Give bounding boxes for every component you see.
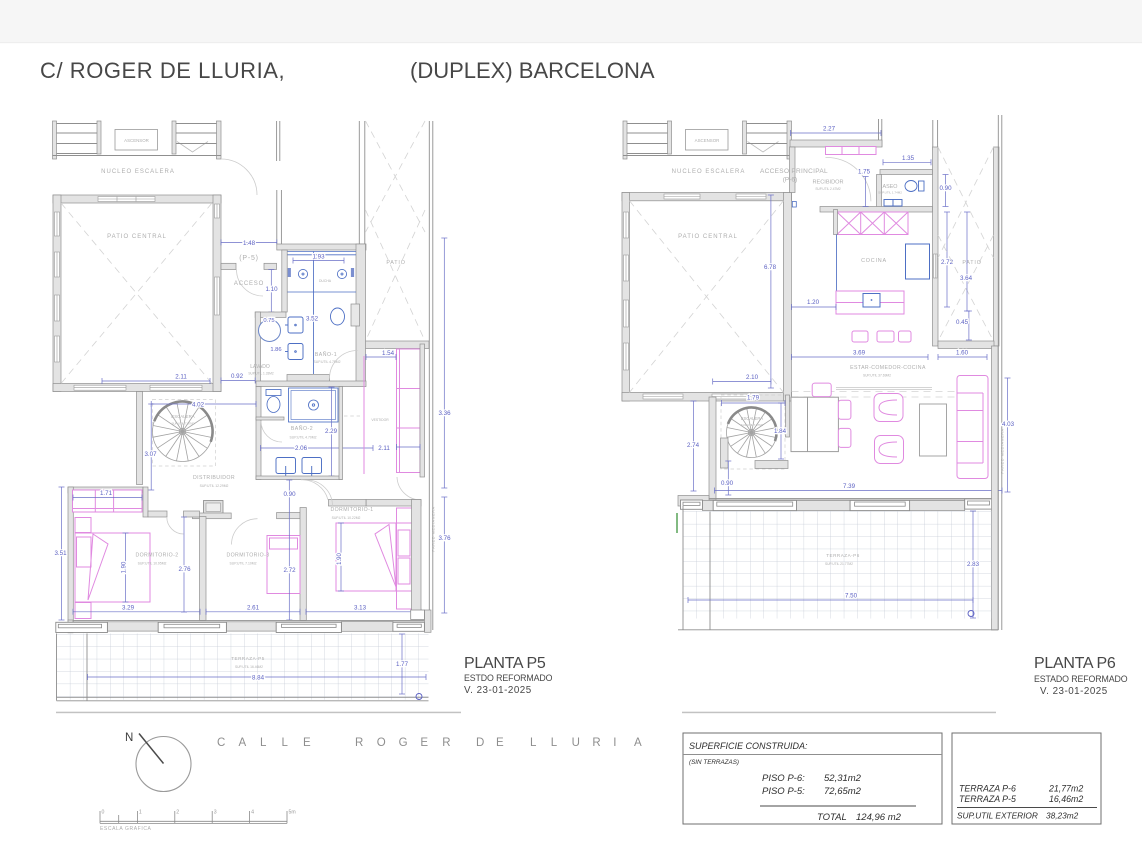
svg-text:7.50: 7.50 <box>845 593 858 600</box>
svg-text:SUP.UTIL 7.10M2: SUP.UTIL 7.10M2 <box>230 562 257 566</box>
svg-text:DORMITORIO-3: DORMITORIO-3 <box>226 553 269 559</box>
svg-text:L: L <box>260 737 267 749</box>
svg-text:E: E <box>496 737 504 749</box>
svg-text:3.51: 3.51 <box>54 550 67 557</box>
svg-text:1.71: 1.71 <box>100 490 113 497</box>
svg-text:BAÑO-1: BAÑO-1 <box>315 351 337 358</box>
svg-text:SUP.UTIL 37.69M2: SUP.UTIL 37.69M2 <box>863 374 891 378</box>
svg-text:ESTAR-COMEDOR-COCINA: ESTAR-COMEDOR-COCINA <box>850 365 926 371</box>
svg-text:2.29: 2.29 <box>325 428 338 435</box>
svg-text:38,23m2: 38,23m2 <box>1046 811 1079 821</box>
svg-text:ESTADO REFORMADO: ESTADO REFORMADO <box>1034 674 1128 684</box>
svg-text:1.35: 1.35 <box>902 155 915 162</box>
svg-text:52,31m2: 52,31m2 <box>824 773 862 784</box>
svg-text:3.64: 3.64 <box>960 275 973 282</box>
svg-text:PATIO: PATIO <box>386 260 405 266</box>
svg-text:TERRAZA-P5: TERRAZA-P5 <box>231 656 265 661</box>
svg-text:(P-5): (P-5) <box>239 255 259 262</box>
svg-text:C/ ROGER DE LLURIA,: C/ ROGER DE LLURIA, <box>40 58 285 83</box>
svg-text:1.60: 1.60 <box>956 350 969 357</box>
svg-text:0.90: 0.90 <box>939 185 952 192</box>
svg-text:NUCLEO ESCALERA: NUCLEO ESCALERA <box>101 169 175 175</box>
svg-text:3.52: 3.52 <box>306 316 319 323</box>
svg-text:COCINA: COCINA <box>861 258 887 264</box>
svg-text:3: 3 <box>214 810 217 816</box>
svg-text:SUP.UTIL EXTERIOR: SUP.UTIL EXTERIOR <box>957 811 1038 821</box>
svg-text:R: R <box>592 737 600 749</box>
svg-text:NUCLEO ESCALERA: NUCLEO ESCALERA <box>672 169 746 175</box>
svg-text:1.86: 1.86 <box>270 347 281 353</box>
svg-text:O: O <box>377 737 386 749</box>
svg-text:3.69: 3.69 <box>853 350 866 357</box>
svg-text:R: R <box>355 737 363 749</box>
svg-text:ASEO: ASEO <box>883 184 898 190</box>
svg-text:BAÑO-2: BAÑO-2 <box>291 425 313 432</box>
svg-text:1.84: 1.84 <box>774 428 787 435</box>
svg-text:4: 4 <box>251 810 254 816</box>
svg-text:V. 23-01-2025: V. 23-01-2025 <box>464 685 532 696</box>
svg-text:U: U <box>572 737 580 749</box>
svg-text:1.10: 1.10 <box>265 286 278 293</box>
svg-text:1.77: 1.77 <box>396 661 409 668</box>
svg-text:A: A <box>239 737 247 749</box>
svg-text:DISTRIBUIDOR: DISTRIBUIDOR <box>193 475 235 481</box>
svg-text:ACCESO PRINCIPAL: ACCESO PRINCIPAL <box>760 168 828 175</box>
svg-text:2.72: 2.72 <box>283 567 296 574</box>
svg-text:2.72: 2.72 <box>941 259 954 266</box>
svg-text:2.27: 2.27 <box>823 126 836 133</box>
svg-text:1.90: 1.90 <box>122 561 128 573</box>
svg-text:2.10: 2.10 <box>746 374 759 381</box>
svg-text:8.84: 8.84 <box>252 674 265 681</box>
svg-text:1.79: 1.79 <box>747 395 760 402</box>
svg-text:PARED MEDIANERA: PARED MEDIANERA <box>1001 428 1005 473</box>
svg-text:2: 2 <box>176 810 179 816</box>
svg-text:VESTIDOR: VESTIDOR <box>371 418 389 422</box>
svg-text:1.20: 1.20 <box>807 299 820 306</box>
svg-text:1.90: 1.90 <box>337 553 343 565</box>
svg-text:SUP.UTIL 1.33M2: SUP.UTIL 1.33M2 <box>248 372 274 376</box>
svg-text:0.90: 0.90 <box>283 491 296 498</box>
svg-text:SUP.UTIL 2.47M2: SUP.UTIL 2.47M2 <box>815 187 841 191</box>
svg-text:PISO P-6:: PISO P-6: <box>762 773 805 784</box>
svg-text:PATIO CENTRAL: PATIO CENTRAL <box>107 234 167 240</box>
svg-text:1.54: 1.54 <box>382 350 395 357</box>
svg-text:4.03: 4.03 <box>1002 421 1015 428</box>
svg-text:SUP.UTIL 16.46M2: SUP.UTIL 16.46M2 <box>235 665 263 669</box>
svg-text:0.45: 0.45 <box>956 319 969 326</box>
svg-text:2.11: 2.11 <box>175 373 187 380</box>
svg-text:SUP.UTIL 7.07M2: SUP.UTIL 7.07M2 <box>172 422 195 426</box>
svg-text:2.61: 2.61 <box>247 604 260 611</box>
svg-text:0: 0 <box>102 810 105 816</box>
svg-text:6.78: 6.78 <box>764 264 777 271</box>
svg-text:DORMITORIO-2: DORMITORIO-2 <box>135 553 178 559</box>
svg-text:0.90: 0.90 <box>721 480 734 487</box>
svg-text:PLANTA P5: PLANTA P5 <box>464 655 546 672</box>
svg-text:3.36: 3.36 <box>438 410 451 417</box>
svg-text:ESCALERA: ESCALERA <box>171 414 194 419</box>
svg-text:RECIBIDOR: RECIBIDOR <box>812 180 843 186</box>
svg-text:D: D <box>476 737 484 749</box>
svg-text:2.76: 2.76 <box>178 566 191 573</box>
svg-text:2.74: 2.74 <box>687 442 700 449</box>
svg-text:DORMITORIO-1: DORMITORIO-1 <box>330 507 373 513</box>
svg-text:I: I <box>613 737 616 749</box>
svg-text:TERRAZA-P6: TERRAZA-P6 <box>826 553 860 558</box>
svg-text:SUP.UTIL 10.95M2: SUP.UTIL 10.95M2 <box>138 562 167 566</box>
svg-text:N: N <box>125 732 133 744</box>
svg-text:3.07: 3.07 <box>144 451 157 458</box>
svg-text:(P-6): (P-6) <box>783 177 797 184</box>
svg-text:21,77m2: 21,77m2 <box>1048 784 1083 794</box>
svg-text:SUP.UTIL 4.75M2: SUP.UTIL 4.75M2 <box>314 360 341 364</box>
svg-text:DUCHA: DUCHA <box>319 279 332 283</box>
svg-text:ESTDO REFORMADO: ESTDO REFORMADO <box>464 673 553 683</box>
svg-text:PATIO CENTRAL: PATIO CENTRAL <box>678 234 738 240</box>
svg-text:ESCALERA: ESCALERA <box>741 416 764 421</box>
svg-text:C: C <box>217 737 225 749</box>
svg-text:2.83: 2.83 <box>967 561 980 568</box>
svg-text:LAVADO: LAVADO <box>250 364 270 370</box>
svg-text:G: G <box>399 737 408 749</box>
svg-text:SUP.UTIL 7.07M2: SUP.UTIL 7.07M2 <box>741 423 764 427</box>
svg-text:PISO P-5:: PISO P-5: <box>762 786 805 797</box>
svg-text:7.39: 7.39 <box>843 483 856 490</box>
svg-text:4.02: 4.02 <box>192 401 205 408</box>
svg-text:TOTAL: TOTAL <box>817 812 847 823</box>
svg-text:5m: 5m <box>289 810 296 816</box>
svg-text:3.13: 3.13 <box>354 604 367 611</box>
svg-text:SUP.UTIL 12.29M2: SUP.UTIL 12.29M2 <box>200 484 229 488</box>
svg-text:2.11: 2.11 <box>378 445 390 452</box>
svg-text:0.75: 0.75 <box>263 318 274 324</box>
svg-text:R: R <box>442 737 450 749</box>
svg-text:SUP.UTIL 21.77M2: SUP.UTIL 21.77M2 <box>825 562 853 566</box>
svg-text:SUP.UTIL 1.74M2: SUP.UTIL 1.74M2 <box>878 191 902 195</box>
svg-text:16,46m2: 16,46m2 <box>1049 794 1083 804</box>
svg-text:ASCENSOR: ASCENSOR <box>695 138 720 143</box>
svg-text:3.29: 3.29 <box>122 604 135 611</box>
svg-text:SUP.UTIL 4.70M2: SUP.UTIL 4.70M2 <box>290 436 317 440</box>
svg-text:1.93: 1.93 <box>312 254 325 261</box>
svg-text:3.76: 3.76 <box>438 535 451 542</box>
svg-text:L: L <box>530 737 537 749</box>
svg-text:E: E <box>420 737 428 749</box>
svg-text:L: L <box>282 737 289 749</box>
svg-text:PLANTA P6: PLANTA P6 <box>1034 655 1116 672</box>
svg-text:ACCESO: ACCESO <box>234 281 264 287</box>
svg-text:1.75: 1.75 <box>858 169 871 176</box>
svg-text:1: 1 <box>139 810 142 816</box>
svg-text:0.92: 0.92 <box>231 373 244 380</box>
svg-text:72,65m2: 72,65m2 <box>824 786 862 797</box>
svg-text:124,96 m2: 124,96 m2 <box>856 812 902 823</box>
svg-text:(SIN TERRAZAS): (SIN TERRAZAS) <box>689 759 739 766</box>
svg-text:(DUPLEX) BARCELONA: (DUPLEX) BARCELONA <box>410 58 655 83</box>
svg-text:L: L <box>551 737 558 749</box>
svg-text:PARED MEDIANERA: PARED MEDIANERA <box>432 506 436 551</box>
svg-text:ESCALA GRAFICA: ESCALA GRAFICA <box>100 826 152 832</box>
svg-text:SUPERFICIE CONSTRUIDA:: SUPERFICIE CONSTRUIDA: <box>689 741 808 751</box>
svg-text:ASCENSOR: ASCENSOR <box>124 138 149 143</box>
svg-text:SUP.UTIL 10.22M2: SUP.UTIL 10.22M2 <box>332 516 361 520</box>
svg-text:A: A <box>634 737 642 749</box>
svg-text:TERRAZA P-6: TERRAZA P-6 <box>959 784 1016 794</box>
svg-text:PATIO: PATIO <box>962 260 981 266</box>
svg-text:1.48: 1.48 <box>243 240 256 247</box>
svg-text:2.06: 2.06 <box>295 445 308 452</box>
svg-text:E: E <box>303 737 311 749</box>
svg-text:V. 23-01-2025: V. 23-01-2025 <box>1040 686 1108 697</box>
svg-text:TERRAZA P-5: TERRAZA P-5 <box>959 794 1016 804</box>
